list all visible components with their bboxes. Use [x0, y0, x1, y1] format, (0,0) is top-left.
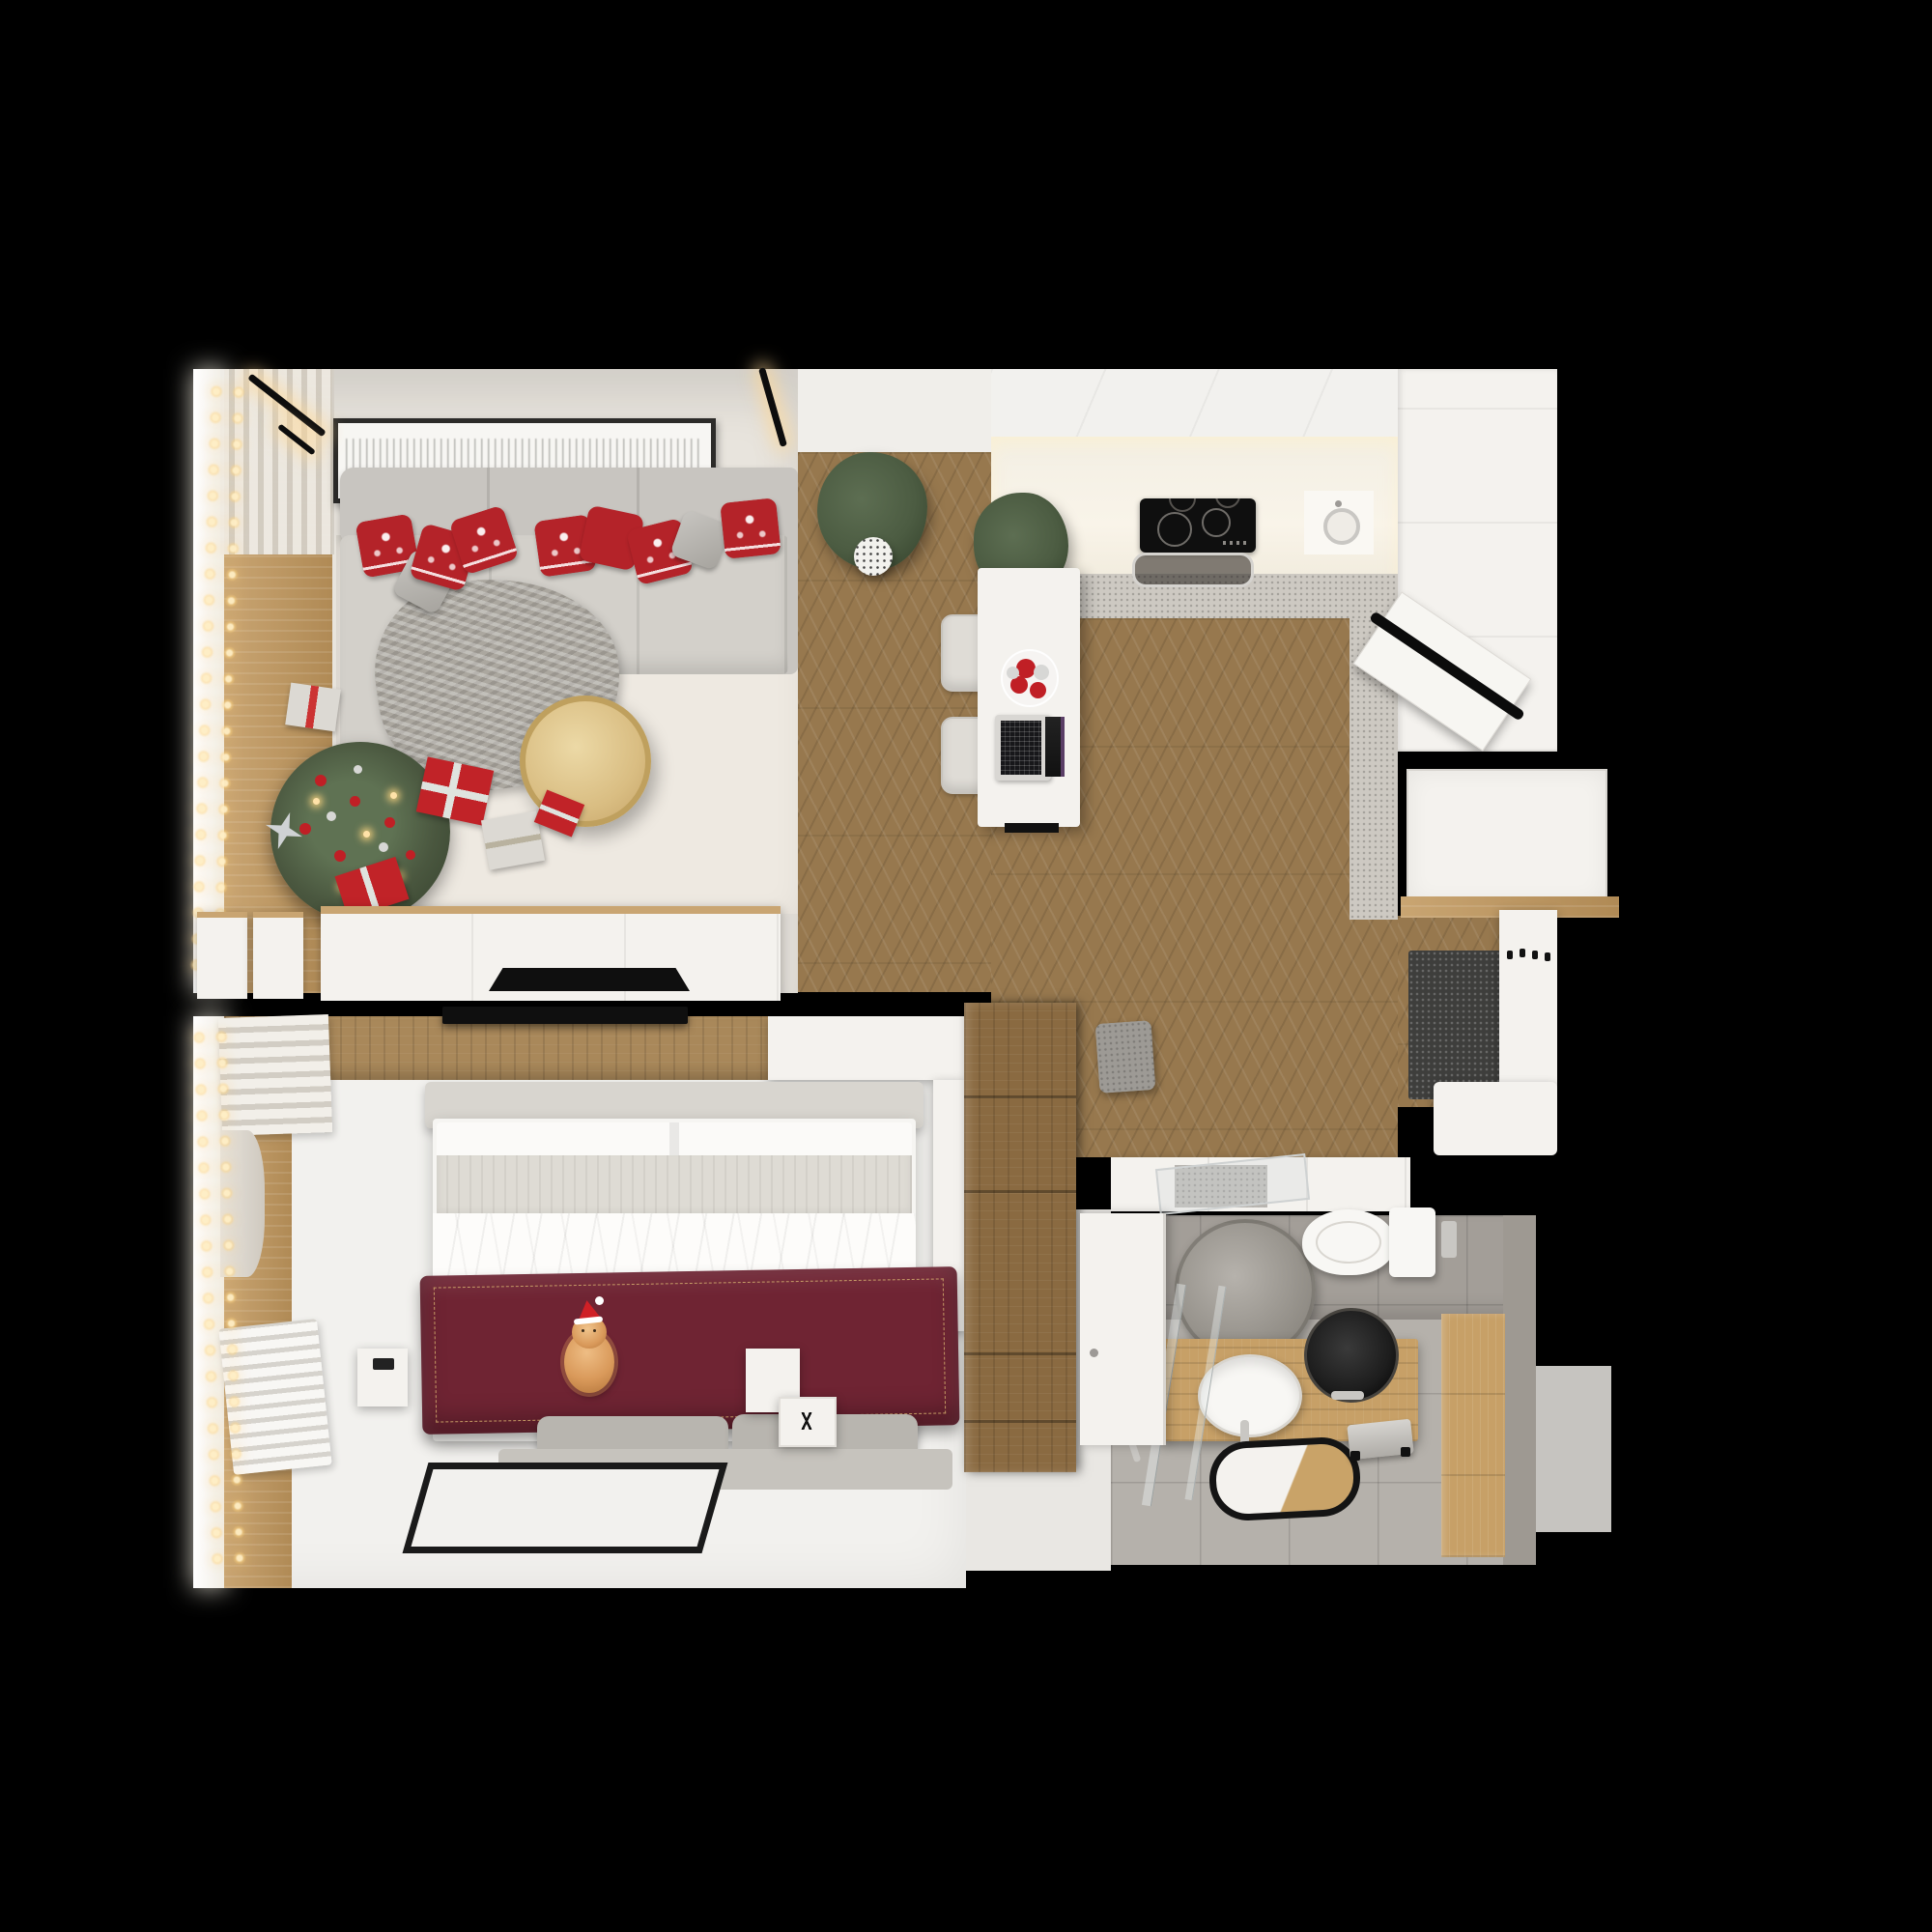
- entry-doormat: [1408, 951, 1501, 1099]
- cat-eye: [593, 1329, 596, 1332]
- window-cabinet: [197, 912, 247, 999]
- tree-ball-silver: [354, 765, 362, 774]
- pillow-red-zigzag: [720, 497, 781, 559]
- black-sprig-decor: [794, 1412, 819, 1430]
- round-sink: [1323, 508, 1360, 545]
- kitchen-sink-zone: [1304, 491, 1374, 554]
- black-sink-faucet: [1331, 1391, 1364, 1400]
- door-handle: [1090, 1349, 1098, 1357]
- bauble-plate: [1001, 649, 1059, 707]
- bauble-red: [1016, 659, 1036, 678]
- stool-leg: [1350, 1451, 1360, 1461]
- toilet-seat-ring: [1316, 1221, 1381, 1264]
- cooktop-ring: [1157, 512, 1192, 547]
- wardrobe-seam: [964, 1420, 1076, 1423]
- cooktop-ring: [1215, 498, 1240, 508]
- laptop-screen: [1045, 717, 1065, 777]
- tree-ball-red: [384, 817, 395, 828]
- breakfast-bar-leg: [1005, 823, 1059, 833]
- phone-on-table: [373, 1358, 394, 1370]
- bedroom-console: [768, 1016, 966, 1080]
- wardrobe-seam: [964, 1190, 1076, 1193]
- cooktop-ring: [1202, 508, 1231, 537]
- bed-quilted-band: [437, 1155, 912, 1219]
- quilt-gold-stitch: [434, 1278, 946, 1422]
- tree-light: [390, 792, 397, 799]
- living-room-tv: [489, 968, 690, 991]
- kitchen-wall-band: [798, 369, 991, 454]
- exterior-grey-block: [1536, 1366, 1611, 1532]
- extractor-tray: [1132, 553, 1254, 587]
- cooktop-ring: [1169, 498, 1196, 512]
- window-cabinet: [253, 912, 303, 999]
- tree-ball-red: [406, 850, 415, 860]
- cooktop-controls: [1223, 541, 1250, 545]
- laptop-base: [995, 715, 1051, 781]
- wardrobe-seam: [964, 1095, 1076, 1098]
- bathroom-right-wall: [1503, 1215, 1536, 1565]
- bedroom-tv: [442, 1007, 688, 1024]
- shoe-bench: [1434, 1082, 1557, 1155]
- sink-tap: [1335, 500, 1342, 507]
- plant-pot-white: [854, 537, 893, 576]
- tree-light: [363, 831, 370, 838]
- coat-hook-panel: [1499, 910, 1557, 1090]
- tree-ball-red: [315, 775, 327, 786]
- bedside-table-left: [357, 1349, 408, 1406]
- bauble-silver: [1034, 665, 1049, 680]
- cat-in-santa-hat: [558, 1308, 620, 1397]
- bauble-silver: [1007, 667, 1019, 679]
- floor-plan-render: [0, 0, 1932, 1932]
- entry-door-open: [1406, 769, 1607, 904]
- coat-hook: [1507, 951, 1513, 959]
- bauble-red: [1030, 682, 1046, 698]
- wardrobe-seam: [964, 1352, 1076, 1355]
- tree-ball-red: [299, 823, 311, 835]
- bath-mat-black-rim: [1207, 1435, 1362, 1522]
- burgundy-quilt: [420, 1266, 960, 1435]
- stool-leg: [1401, 1447, 1410, 1457]
- laptop-keyboard: [1001, 721, 1041, 775]
- decor-box: [779, 1397, 837, 1447]
- black-vessel-sink: [1304, 1308, 1399, 1403]
- black-frame-rug: [403, 1463, 728, 1553]
- tree-ball-silver: [327, 811, 336, 821]
- santa-hat-pom: [595, 1296, 604, 1305]
- tree-ball-silver: [379, 842, 388, 852]
- coat-hook: [1545, 952, 1550, 961]
- cat-eye: [582, 1329, 584, 1332]
- bathroom-door-open: [1080, 1213, 1166, 1445]
- bed-pillow-band: [437, 1122, 912, 1159]
- tree-ball-red: [334, 850, 346, 862]
- gift-box-white: [285, 683, 341, 732]
- coat-hook: [1532, 951, 1538, 959]
- flush-plate: [1441, 1221, 1457, 1258]
- hall-floor-bottom: [964, 1470, 1111, 1571]
- tall-wooden-wardrobe: [964, 1003, 1076, 1472]
- tree-light: [313, 798, 320, 805]
- coat-hook: [1520, 949, 1525, 957]
- bathroom-wood-wall-panel: [1441, 1314, 1505, 1557]
- induction-cooktop: [1140, 498, 1256, 553]
- toilet-cistern: [1389, 1207, 1435, 1277]
- hall-grey-pouf: [1095, 1020, 1156, 1094]
- tree-ball-red: [350, 796, 360, 807]
- toilet-bowl: [1302, 1209, 1395, 1275]
